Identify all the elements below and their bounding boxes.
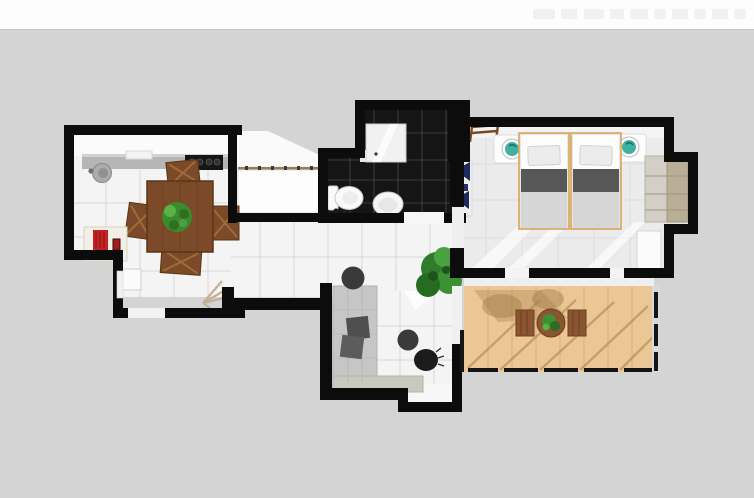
sink-basin-inner (379, 198, 398, 213)
blanket-light-left (521, 192, 567, 228)
closet-bed (238, 170, 324, 213)
dark-pouf-living (398, 330, 419, 351)
bistro-table (537, 309, 565, 337)
deck-chair-left (516, 310, 534, 336)
entry-door-opening (128, 308, 165, 318)
bedroom-door-opening (452, 207, 464, 248)
wardrobe (645, 156, 688, 222)
wall-living-left (320, 283, 332, 398)
wall-bedroom-bottom (452, 268, 674, 278)
pedestal-sink (373, 192, 403, 216)
deck-chair-right (568, 310, 586, 336)
dark-pouf-hall (342, 267, 365, 290)
sink-faucet (88, 168, 93, 173)
pillow-right (580, 145, 613, 165)
floor-plan-screenshot (0, 0, 754, 498)
twin-bed-right (571, 133, 621, 229)
wall-bay-right (688, 152, 698, 234)
counter-tab (126, 151, 152, 159)
twin-bed-left (519, 133, 569, 229)
terrace-slider-band (464, 278, 654, 286)
white-cabinet-bedroom (637, 231, 661, 271)
shower-drain (374, 152, 377, 155)
blanket-dark-left (521, 169, 567, 192)
terrace-door-opening-1 (505, 268, 529, 278)
bathroom-threshold (404, 212, 444, 224)
faint-watermark (533, 9, 746, 19)
pillow-left (528, 145, 561, 165)
wall-living-bottom (320, 388, 408, 400)
blanket-dark-right (573, 169, 619, 192)
floor-plan-canvas (0, 0, 754, 498)
toilet-floor-dot-left (333, 208, 338, 213)
wall-kitchen-left (64, 125, 74, 260)
blanket-light-right (573, 192, 619, 228)
wall-kitchen-top (64, 125, 242, 135)
wall-bath-left (318, 148, 328, 223)
entry-door-leaf (117, 271, 123, 298)
wall-bedroom-top (458, 117, 674, 127)
toilet-seat (342, 192, 358, 205)
wall-kitchen-right (228, 128, 237, 223)
wall-bath-right-column (450, 155, 464, 207)
terrace-door-opening-2 (610, 268, 624, 278)
sofa-cushion-2 (340, 335, 365, 360)
shower (360, 124, 406, 162)
band-divider (0, 29, 754, 30)
wall-bath-right-block (448, 100, 470, 162)
wall-hall-bottom (228, 298, 332, 310)
small-red-box (113, 239, 120, 250)
table-plant (162, 202, 192, 232)
